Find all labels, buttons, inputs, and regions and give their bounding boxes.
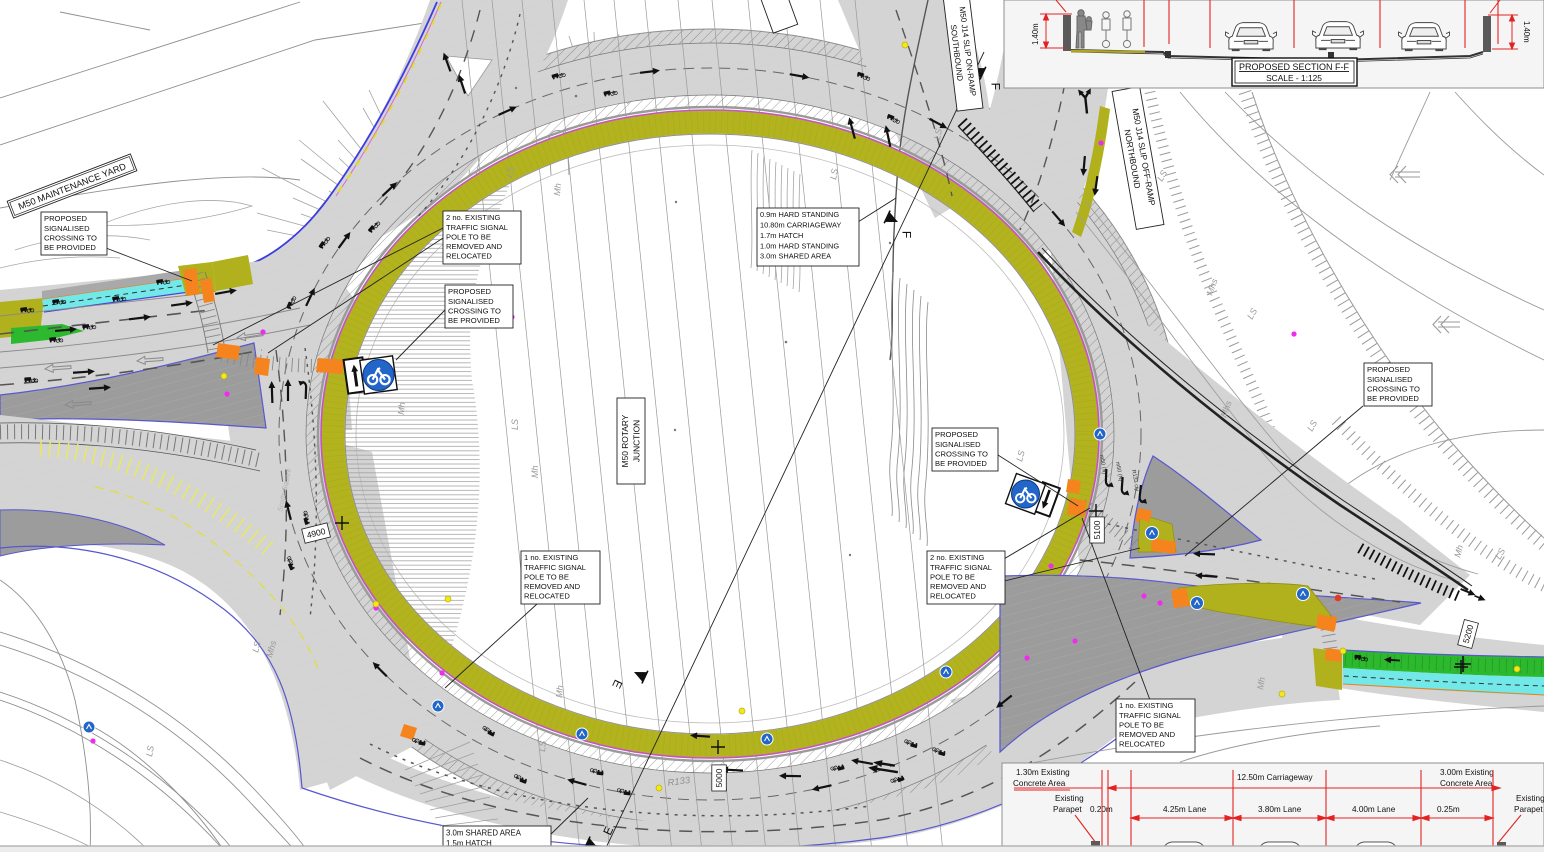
svg-text:Existing: Existing [1055,794,1084,803]
svg-text:CROSSING TO: CROSSING TO [44,233,97,242]
svg-text:SIGNALISED: SIGNALISED [44,224,90,233]
svg-text:2 no. EXISTING: 2 no. EXISTING [446,213,501,222]
svg-text:1.0m HARD STANDING: 1.0m HARD STANDING [760,241,839,250]
svg-text:Mh: Mh [554,685,565,698]
svg-text:1 no. EXISTING: 1 no. EXISTING [524,553,579,562]
svg-text:F: F [900,231,914,238]
svg-text:4.00m Lane: 4.00m Lane [1352,805,1396,814]
svg-text:0.9m HARD STANDING: 0.9m HARD STANDING [760,210,839,219]
svg-text:RELOCATED: RELOCATED [1119,740,1165,749]
svg-text:Mh: Mh [530,465,540,478]
svg-text:REMOVED AND: REMOVED AND [930,582,987,591]
svg-text:5000: 5000 [714,768,724,787]
svg-text:10.80m CARRIAGEWAY: 10.80m CARRIAGEWAY [760,221,841,230]
svg-text:BE PROVIDED: BE PROVIDED [1367,394,1419,403]
svg-text:PROPOSED: PROPOSED [1367,365,1411,374]
svg-text:12.50m Carriageway: 12.50m Carriageway [1237,773,1313,782]
svg-text:1 no. EXISTING: 1 no. EXISTING [1119,701,1174,710]
svg-text:JUNCTION: JUNCTION [632,420,642,462]
svg-text:TRAFFIC SIGNAL: TRAFFIC SIGNAL [446,223,508,232]
svg-text:F: F [989,83,1003,90]
svg-text:TRAFFIC SIGNAL: TRAFFIC SIGNAL [1119,711,1181,720]
svg-text:1.30m Existing: 1.30m Existing [1016,768,1070,777]
svg-text:Mh: Mh [396,402,407,415]
svg-text:CROSSING TO: CROSSING TO [935,449,988,458]
svg-text:0.25m: 0.25m [1437,805,1460,814]
svg-text:Concrete Area: Concrete Area [1440,779,1493,788]
svg-text:POLE TO BE: POLE TO BE [930,572,975,581]
svg-text:RELOCATED: RELOCATED [446,252,492,261]
svg-text:Existing: Existing [1516,794,1544,803]
svg-text:CROSSING TO: CROSSING TO [1367,384,1420,393]
svg-text:BE PROVIDED: BE PROVIDED [44,243,96,252]
svg-text:1.7m HATCH: 1.7m HATCH [760,231,803,240]
svg-text:PROPOSED: PROPOSED [44,214,88,223]
svg-text:TRAFFIC SIGNAL: TRAFFIC SIGNAL [930,563,992,572]
svg-text:3.0m SHARED AREA: 3.0m SHARED AREA [446,828,522,837]
svg-text:SIGNALISED: SIGNALISED [1367,375,1413,384]
svg-text:CROSSING TO: CROSSING TO [448,306,501,315]
svg-text:M50 ROTARY: M50 ROTARY [620,414,630,467]
svg-text:1.40m: 1.40m [1522,21,1531,43]
svg-text:Mh: Mh [552,183,563,196]
svg-text:Parapet: Parapet [1514,805,1543,814]
svg-text:LS: LS [504,166,516,179]
svg-text:POLE TO BE: POLE TO BE [1119,720,1164,729]
svg-text:REMOVED AND: REMOVED AND [446,242,503,251]
svg-text:SIGNALISED: SIGNALISED [935,440,981,449]
svg-text:Mh: Mh [1255,676,1267,690]
svg-text:1.40m: 1.40m [1031,23,1040,45]
svg-text:SCALE - 1:125: SCALE - 1:125 [1266,73,1322,83]
svg-text:REMOVED AND: REMOVED AND [1119,730,1176,739]
svg-text:REMOVED AND: REMOVED AND [524,582,581,591]
svg-text:SIGNALISED: SIGNALISED [448,297,494,306]
svg-text:LS: LS [932,128,944,141]
svg-text:3.80m Lane: 3.80m Lane [1258,805,1302,814]
svg-text:3.0m SHARED AREA: 3.0m SHARED AREA [760,252,831,261]
svg-text:LS: LS [828,168,840,181]
svg-text:2 no. EXISTING: 2 no. EXISTING [930,553,985,562]
svg-text:LS: LS [510,419,520,430]
svg-text:Parapet: Parapet [1053,805,1082,814]
svg-text:3.00m Existing: 3.00m Existing [1440,768,1494,777]
svg-text:PROPOSED: PROPOSED [448,287,492,296]
svg-text:POLE TO BE: POLE TO BE [446,232,491,241]
svg-text:BE PROVIDED: BE PROVIDED [935,459,987,468]
svg-text:TRAFFIC SIGNAL: TRAFFIC SIGNAL [524,563,586,572]
svg-text:LS: LS [144,745,156,758]
svg-text:5100: 5100 [1092,520,1102,539]
svg-text:BE PROVIDED: BE PROVIDED [448,316,500,325]
svg-text:4.25m Lane: 4.25m Lane [1163,805,1207,814]
svg-text:LS: LS [537,740,548,752]
svg-text:PROPOSED SECTION F-F: PROPOSED SECTION F-F [1239,62,1350,72]
svg-text:RELOCATED: RELOCATED [930,592,976,601]
svg-text:POLE TO BE: POLE TO BE [524,572,569,581]
svg-text:PROPOSED: PROPOSED [935,430,979,439]
svg-text:RELOCATED: RELOCATED [524,592,570,601]
svg-text:Concrete Area: Concrete Area [1013,779,1066,788]
